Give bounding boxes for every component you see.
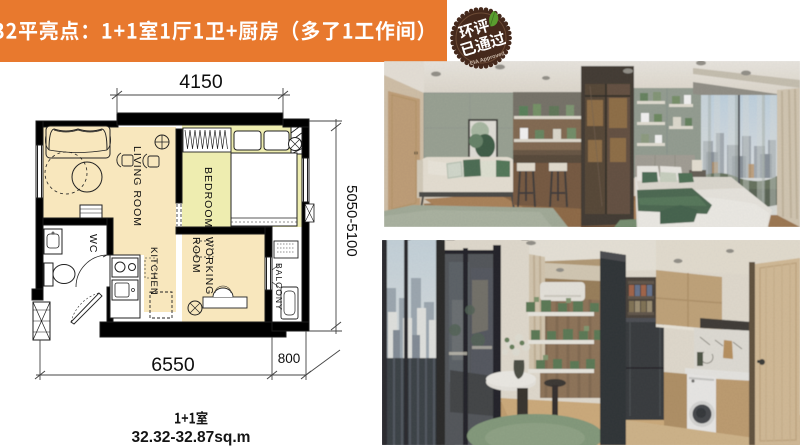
svg-text:BEDROOM: BEDROOM xyxy=(202,167,214,228)
svg-text:LIVING ROOM: LIVING ROOM xyxy=(131,146,143,227)
svg-text:BALCONY: BALCONY xyxy=(274,263,284,311)
svg-text:WORKING: WORKING xyxy=(203,237,215,295)
svg-text:5050-5100: 5050-5100 xyxy=(343,185,360,257)
svg-text:WC: WC xyxy=(87,234,99,254)
svg-text:6550: 6550 xyxy=(151,354,195,376)
svg-text:4150: 4150 xyxy=(179,71,223,93)
svg-text:800: 800 xyxy=(278,351,301,366)
svg-text:KITCHEN: KITCHEN xyxy=(148,247,159,296)
svg-text:ROOM: ROOM xyxy=(190,237,202,274)
